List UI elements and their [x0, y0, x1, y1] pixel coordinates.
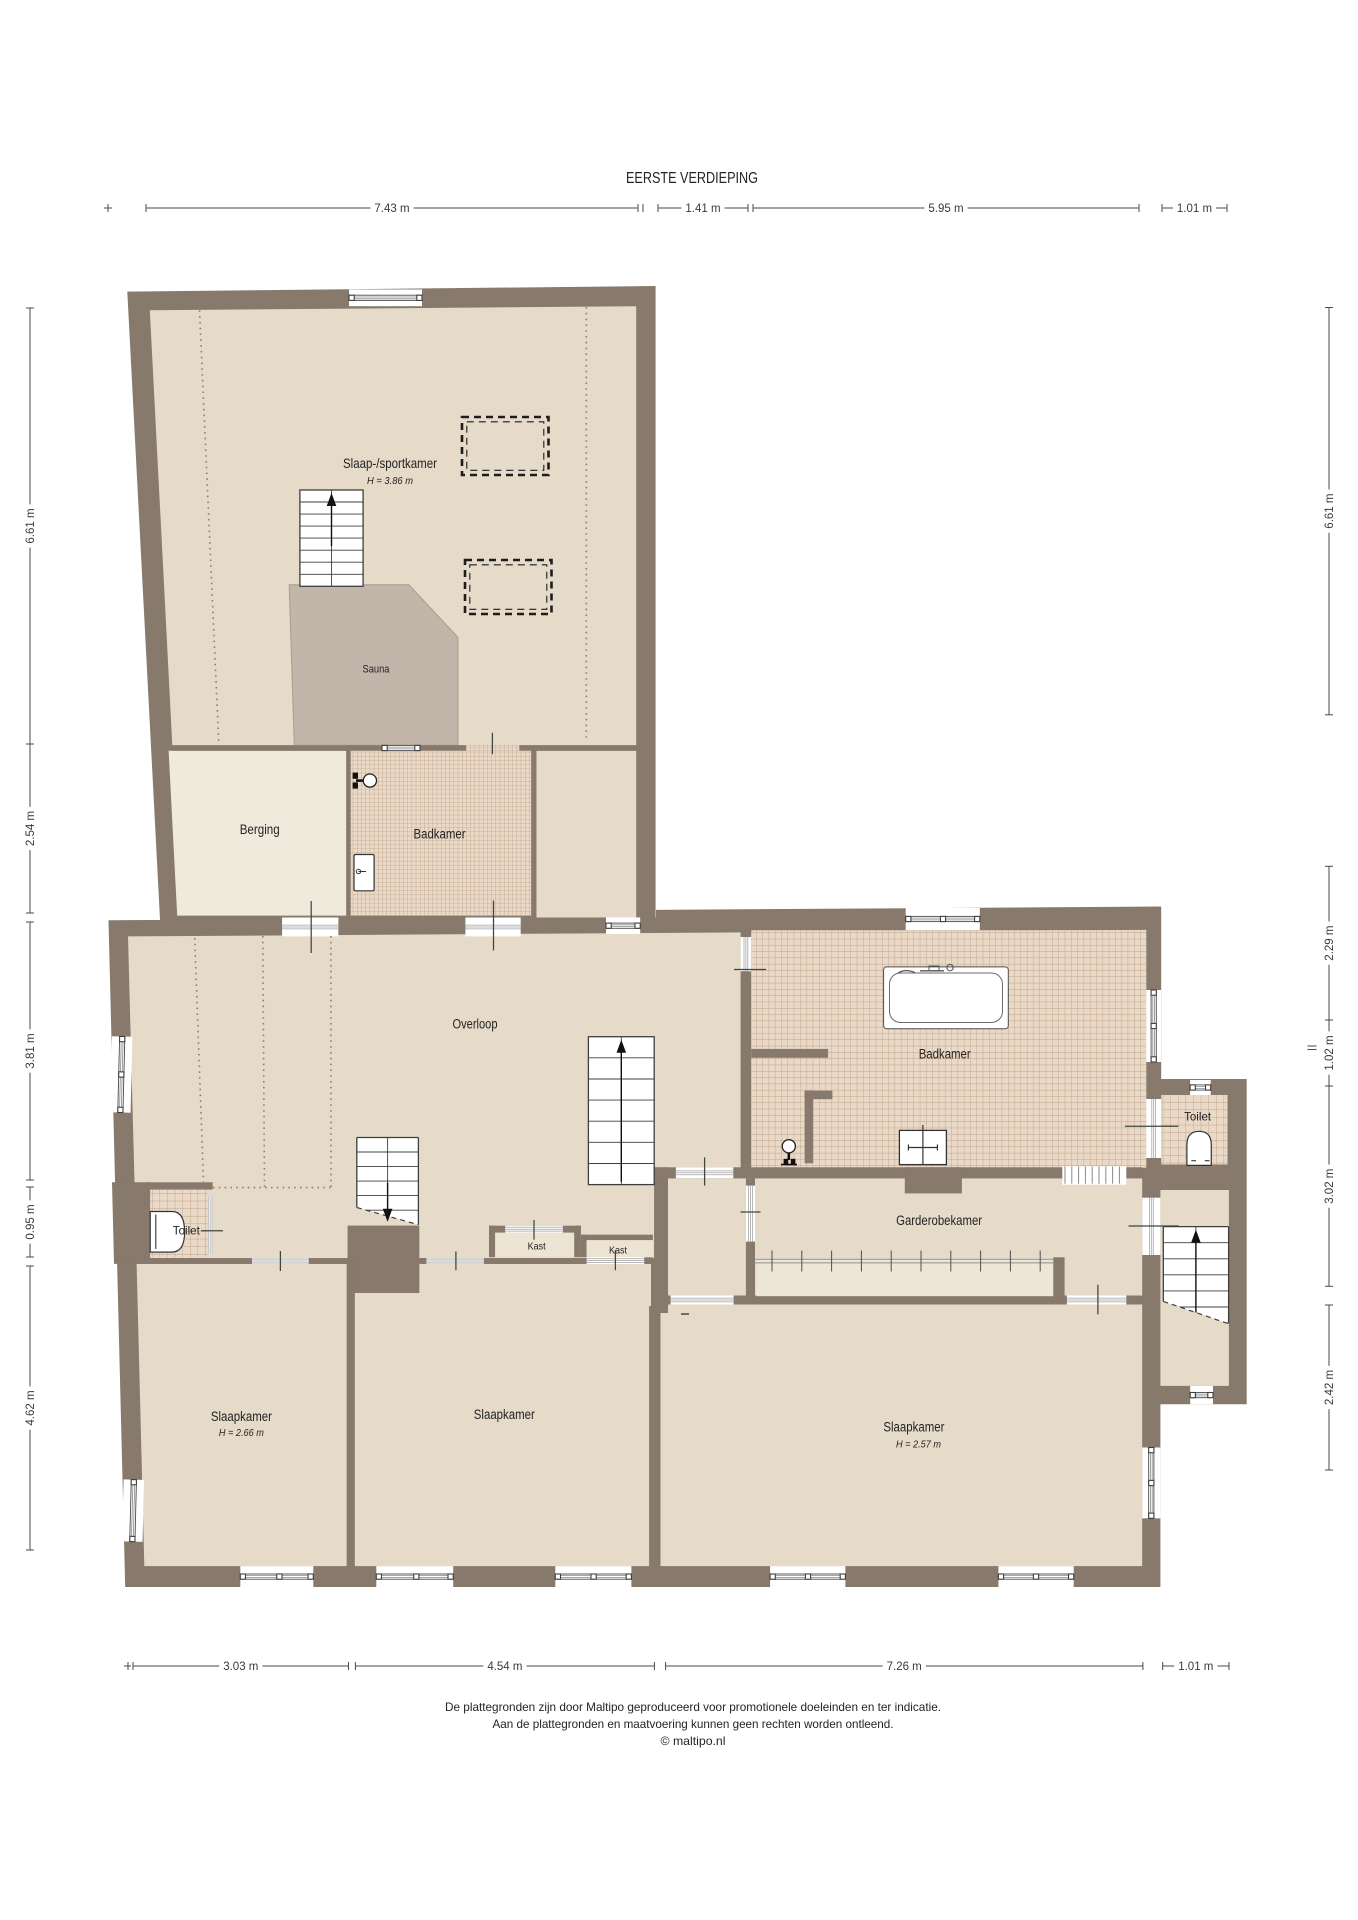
svg-text:Aan de plattegronden en maatvo: Aan de plattegronden en maatvoering kunn…	[493, 1717, 894, 1731]
svg-text:Kast: Kast	[609, 1245, 627, 1257]
svg-text:Garderobekamer: Garderobekamer	[896, 1213, 982, 1228]
svg-text:Toilet: Toilet	[1184, 1110, 1212, 1124]
svg-text:Badkamer: Badkamer	[919, 1047, 971, 1062]
svg-text:4.62 m: 4.62 m	[25, 1390, 37, 1425]
svg-text:Berging: Berging	[240, 822, 280, 837]
svg-text:© maltipo.nl: © maltipo.nl	[661, 1734, 726, 1748]
svg-text:5.95 m: 5.95 m	[928, 203, 963, 215]
svg-text:De plattegronden zijn door Mal: De plattegronden zijn door Maltipo gepro…	[445, 1700, 941, 1714]
svg-text:2.29 m: 2.29 m	[1324, 926, 1336, 961]
svg-text:H = 2.57 m: H = 2.57 m	[896, 1439, 941, 1451]
svg-text:6.61 m: 6.61 m	[1324, 494, 1336, 529]
svg-text:6.61 m: 6.61 m	[25, 508, 37, 543]
svg-text:Overloop: Overloop	[453, 1017, 498, 1032]
svg-text:7.43 m: 7.43 m	[374, 203, 409, 215]
svg-text:Slaapkamer: Slaapkamer	[211, 1409, 272, 1424]
svg-text:Slaapkamer: Slaapkamer	[883, 1420, 944, 1435]
svg-text:0.95 m: 0.95 m	[25, 1204, 37, 1239]
svg-text:7.26 m: 7.26 m	[887, 1661, 922, 1673]
svg-text:3.02 m: 3.02 m	[1324, 1169, 1336, 1204]
svg-text:Slaapkamer: Slaapkamer	[474, 1407, 535, 1422]
svg-text:1.01 m: 1.01 m	[1177, 203, 1212, 215]
svg-text:1.01 m: 1.01 m	[1178, 1661, 1213, 1673]
svg-text:3.81 m: 3.81 m	[25, 1033, 37, 1068]
svg-text:2.42 m: 2.42 m	[1324, 1370, 1336, 1405]
svg-text:EERSTE VERDIEPING: EERSTE VERDIEPING	[626, 170, 758, 187]
svg-text:Kast: Kast	[528, 1241, 546, 1253]
svg-text:H = 3.86 m: H = 3.86 m	[367, 475, 413, 487]
svg-text:Slaap-/sportkamer: Slaap-/sportkamer	[343, 455, 437, 471]
svg-text:3.03 m: 3.03 m	[223, 1661, 258, 1673]
svg-text:1.41 m: 1.41 m	[685, 203, 720, 215]
svg-text:Badkamer: Badkamer	[414, 827, 466, 842]
svg-text:H = 2.66 m: H = 2.66 m	[219, 1427, 264, 1439]
svg-text:Sauna: Sauna	[363, 664, 391, 676]
svg-text:4.54 m: 4.54 m	[487, 1661, 522, 1673]
svg-text:2.54 m: 2.54 m	[25, 811, 37, 846]
svg-text:Toilet: Toilet	[173, 1224, 201, 1238]
svg-text:1.02 m: 1.02 m	[1324, 1035, 1336, 1070]
